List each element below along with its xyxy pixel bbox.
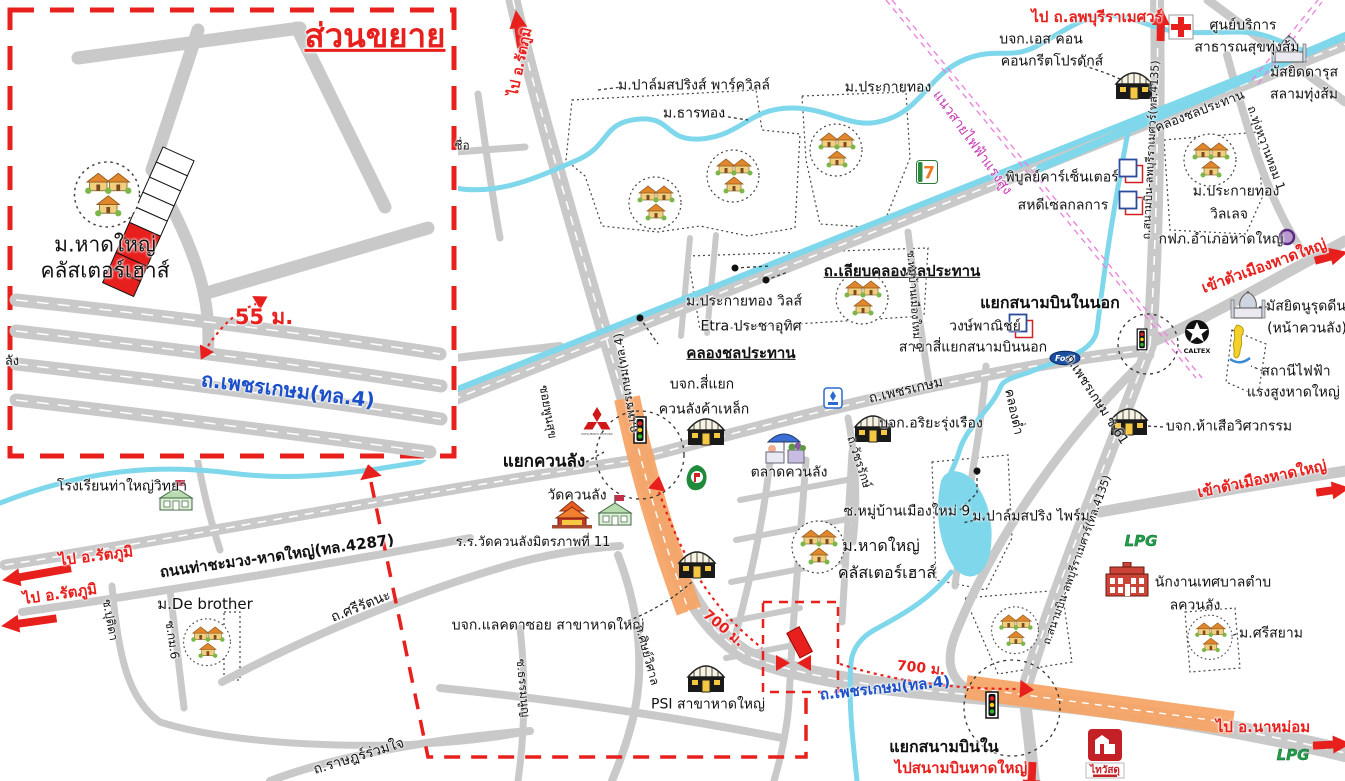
inset-panel xyxy=(6,6,458,460)
map-graphics xyxy=(0,0,1345,781)
map-canvas: 7MITSUBISHI MOTORSFordCALTEXLPGLPGไทวัสด… xyxy=(0,0,1345,781)
